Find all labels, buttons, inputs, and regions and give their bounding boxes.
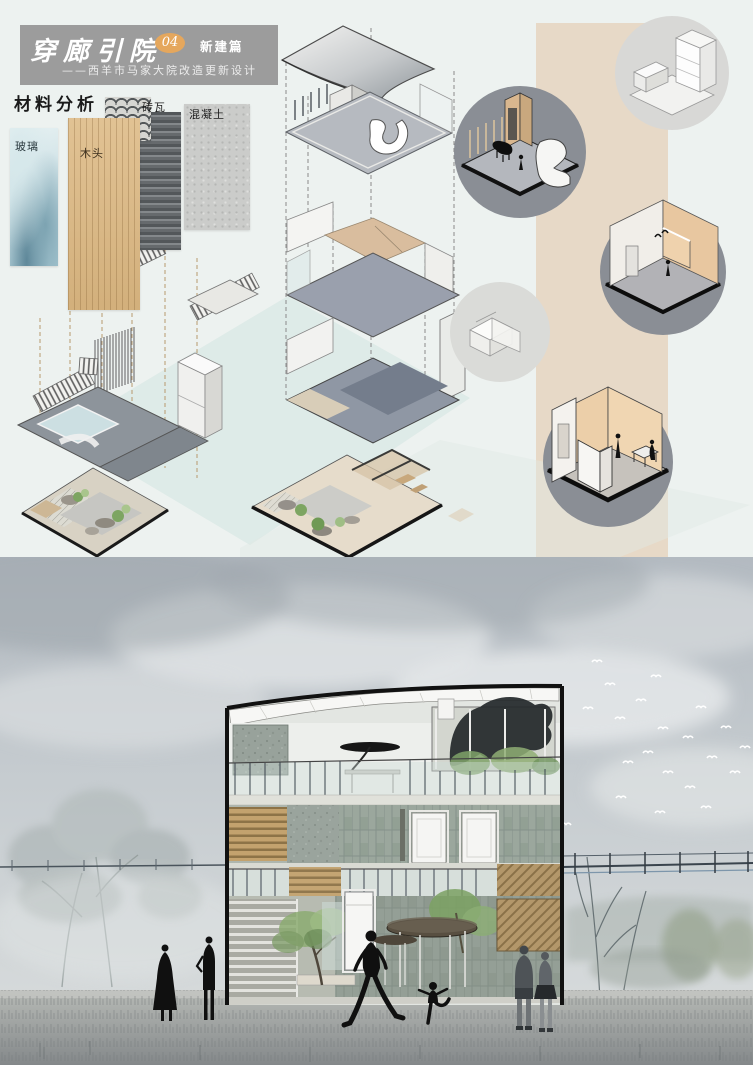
ground-floor (227, 889, 562, 1005)
title-block: 穿廊引院 04 新建篇 ——西羊市马家大院改造更新设计 (20, 25, 278, 85)
elevation-rendering (0, 557, 753, 1065)
chapter-badge: 新建篇 (200, 36, 244, 55)
material-label-brick: 砖瓦 (142, 99, 166, 115)
callout-massing-model-middle (450, 282, 550, 382)
door-right (460, 811, 498, 863)
material-label-wood: 木头 (80, 145, 104, 161)
woven-wall-panel (497, 899, 562, 951)
building-elevation (227, 686, 562, 1005)
subtitle: ——西羊市马家大院改造更新设计 (62, 62, 257, 78)
sheet-number-badge: 04 (155, 33, 185, 53)
planter-bench (297, 975, 355, 985)
wood-louver-panel (229, 807, 287, 861)
materials-heading: 材料分析 (14, 90, 98, 115)
balcony (227, 863, 562, 896)
door-left (410, 811, 448, 863)
level-3 (286, 84, 452, 174)
presentation-board: 穿廊引院 04 新建篇 ——西羊市马家大院改造更新设计 材料分析 玻璃 木头 砖… (0, 0, 753, 1065)
material-label-concrete: 混凝土 (189, 106, 225, 122)
material-swatch-concrete (184, 104, 250, 230)
callout-interior-piano-room (454, 86, 586, 218)
small-tower (178, 353, 222, 438)
second-floor (227, 805, 562, 863)
louver-screen (95, 327, 134, 395)
roof-glass-railing (229, 762, 560, 795)
material-label-glass: 玻璃 (15, 138, 39, 154)
material-swatch-wood (68, 118, 140, 310)
curved-roof (282, 26, 434, 98)
balcony-lattice-screen (497, 864, 562, 896)
callout-massing-model-top (615, 16, 729, 130)
balcony-wood-screen (289, 867, 341, 896)
